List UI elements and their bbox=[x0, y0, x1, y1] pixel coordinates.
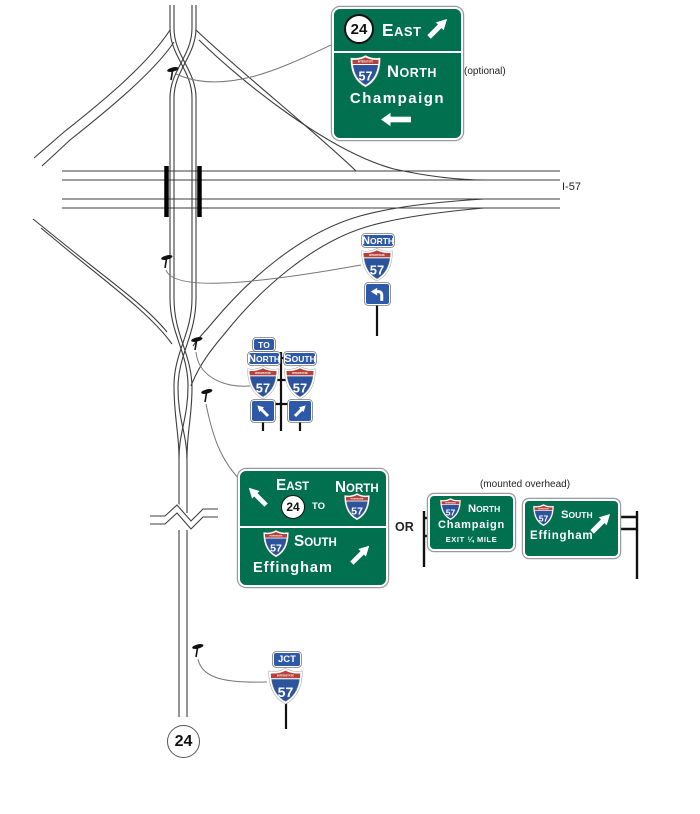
up-right-arrow-plate bbox=[288, 400, 312, 422]
interstate-word: INTERSTATE bbox=[292, 371, 308, 375]
interstate-word: INTERSTATE bbox=[255, 371, 271, 375]
advance-north-label: NORTH bbox=[387, 62, 437, 82]
interstate-shield: INTERSTATE 57 bbox=[440, 498, 461, 520]
interstate-number: 57 bbox=[270, 543, 282, 555]
interstate-shield: INTERSTATE 57 bbox=[350, 55, 381, 87]
interstate-shield: INTERSTATE 57 bbox=[268, 668, 303, 704]
interstate-word: INTERSTATE bbox=[277, 674, 294, 678]
interchange-signing-diagram: I-57 (optional) OR (mounted overhead) 24… bbox=[0, 0, 700, 814]
route-24-end-marker: 24 bbox=[167, 725, 200, 758]
route-24-number: 24 bbox=[175, 733, 193, 751]
up-right-arrow-icon bbox=[424, 15, 451, 42]
route-24-badge: 24 bbox=[281, 495, 305, 519]
junction-south-label: SOUTH bbox=[294, 533, 337, 551]
interstate-number: 57 bbox=[370, 263, 384, 278]
north-plate: NORTH bbox=[362, 234, 394, 247]
up-left-arrow-icon bbox=[245, 484, 271, 510]
route-24-number: 24 bbox=[351, 21, 368, 38]
interstate-number: 57 bbox=[256, 381, 270, 396]
interstate-number: 57 bbox=[539, 514, 549, 524]
overhead-exit-label: EXIT ¼ MILE bbox=[430, 535, 513, 544]
mounted-overhead-label: (mounted overhead) bbox=[450, 479, 600, 490]
junction-sign-south-panel: INTERSTATE 57 SOUTH Effingham bbox=[240, 526, 386, 584]
interstate-word: INTERSTATE bbox=[358, 61, 374, 64]
up-right-arrow-icon bbox=[347, 542, 373, 568]
interstate-shield: INTERSTATE 57 bbox=[247, 366, 279, 399]
champaign-label: Champaign bbox=[334, 90, 461, 107]
advance-sign-i57-panel: INTERSTATE 57 NORTH Champaign bbox=[334, 51, 461, 135]
interstate-shield: INTERSTATE 57 bbox=[361, 248, 393, 281]
interstate-number: 57 bbox=[278, 684, 294, 700]
junction-to-label: TO bbox=[312, 501, 325, 512]
junction-guide-sign: EAST 24 TO NORTH INTERSTATE 57 INTERSTAT… bbox=[238, 469, 388, 587]
overhead-effingham-label: Effingham bbox=[530, 530, 593, 542]
overhead-champaign-label: Champaign bbox=[430, 519, 513, 531]
advance-east-label: EAST bbox=[382, 20, 422, 41]
north-plate-label: NORTH bbox=[248, 353, 280, 365]
north-plate-label: NORTH bbox=[362, 235, 394, 247]
effingham-label: Effingham bbox=[253, 560, 333, 576]
jct-plate: JCT bbox=[273, 652, 301, 667]
overhead-north-label: NORTH bbox=[468, 503, 500, 515]
interstate-shield: INTERSTATE 57 bbox=[263, 530, 289, 557]
junction-sign-east-panel: EAST 24 TO NORTH INTERSTATE 57 bbox=[240, 471, 386, 526]
interstate-shield: INTERSTATE 57 bbox=[284, 366, 316, 399]
interstate-word: INTERSTATE bbox=[270, 534, 284, 537]
south-plate: SOUTH bbox=[284, 352, 316, 365]
north-plate: NORTH bbox=[248, 352, 280, 365]
overhead-north-sign: INTERSTATE 57 NORTH Champaign EXIT ¼ MIL… bbox=[428, 494, 515, 551]
interstate-number: 57 bbox=[293, 381, 307, 396]
road-break-symbol bbox=[150, 505, 218, 529]
left-arrow-icon bbox=[381, 112, 413, 127]
optional-label: (optional) bbox=[464, 66, 506, 77]
jct-plate-label: JCT bbox=[278, 654, 296, 665]
up-left-arrow-icon bbox=[255, 403, 271, 419]
interstate-number: 57 bbox=[446, 508, 456, 518]
overpass-bridge bbox=[167, 166, 200, 217]
overhead-south-sign: INTERSTATE 57 SOUTH Effingham bbox=[523, 499, 620, 558]
freeway-label: I-57 bbox=[562, 181, 581, 193]
up-right-arrow-icon bbox=[587, 510, 614, 537]
route-24-badge: 24 bbox=[344, 14, 374, 44]
hook-left-arrow-icon bbox=[369, 286, 386, 303]
hook-left-arrow-plate bbox=[365, 283, 390, 305]
to-plate-label: TO bbox=[258, 340, 270, 350]
up-left-arrow-plate bbox=[251, 400, 275, 422]
up-right-arrow-icon bbox=[292, 403, 308, 419]
interstate-word: INTERSTATE bbox=[369, 253, 385, 257]
interstate-word: INTERSTATE bbox=[351, 497, 365, 500]
to-plate: TO bbox=[253, 338, 275, 351]
interstate-number: 57 bbox=[359, 70, 373, 84]
advance-sign-route24-panel: 24 EAST bbox=[334, 9, 461, 51]
junction-east-label: EAST bbox=[276, 477, 309, 495]
advance-guide-sign: 24 EAST INTERSTATE 57 NORTH Champaign bbox=[332, 7, 463, 140]
route-24-number: 24 bbox=[286, 500, 299, 514]
south-plate-label: SOUTH bbox=[284, 353, 315, 365]
or-label: OR bbox=[395, 520, 414, 534]
interstate-shield: INTERSTATE 57 bbox=[533, 504, 554, 526]
interstate-shield: INTERSTATE 57 bbox=[344, 493, 370, 520]
interstate-number: 57 bbox=[351, 506, 363, 518]
